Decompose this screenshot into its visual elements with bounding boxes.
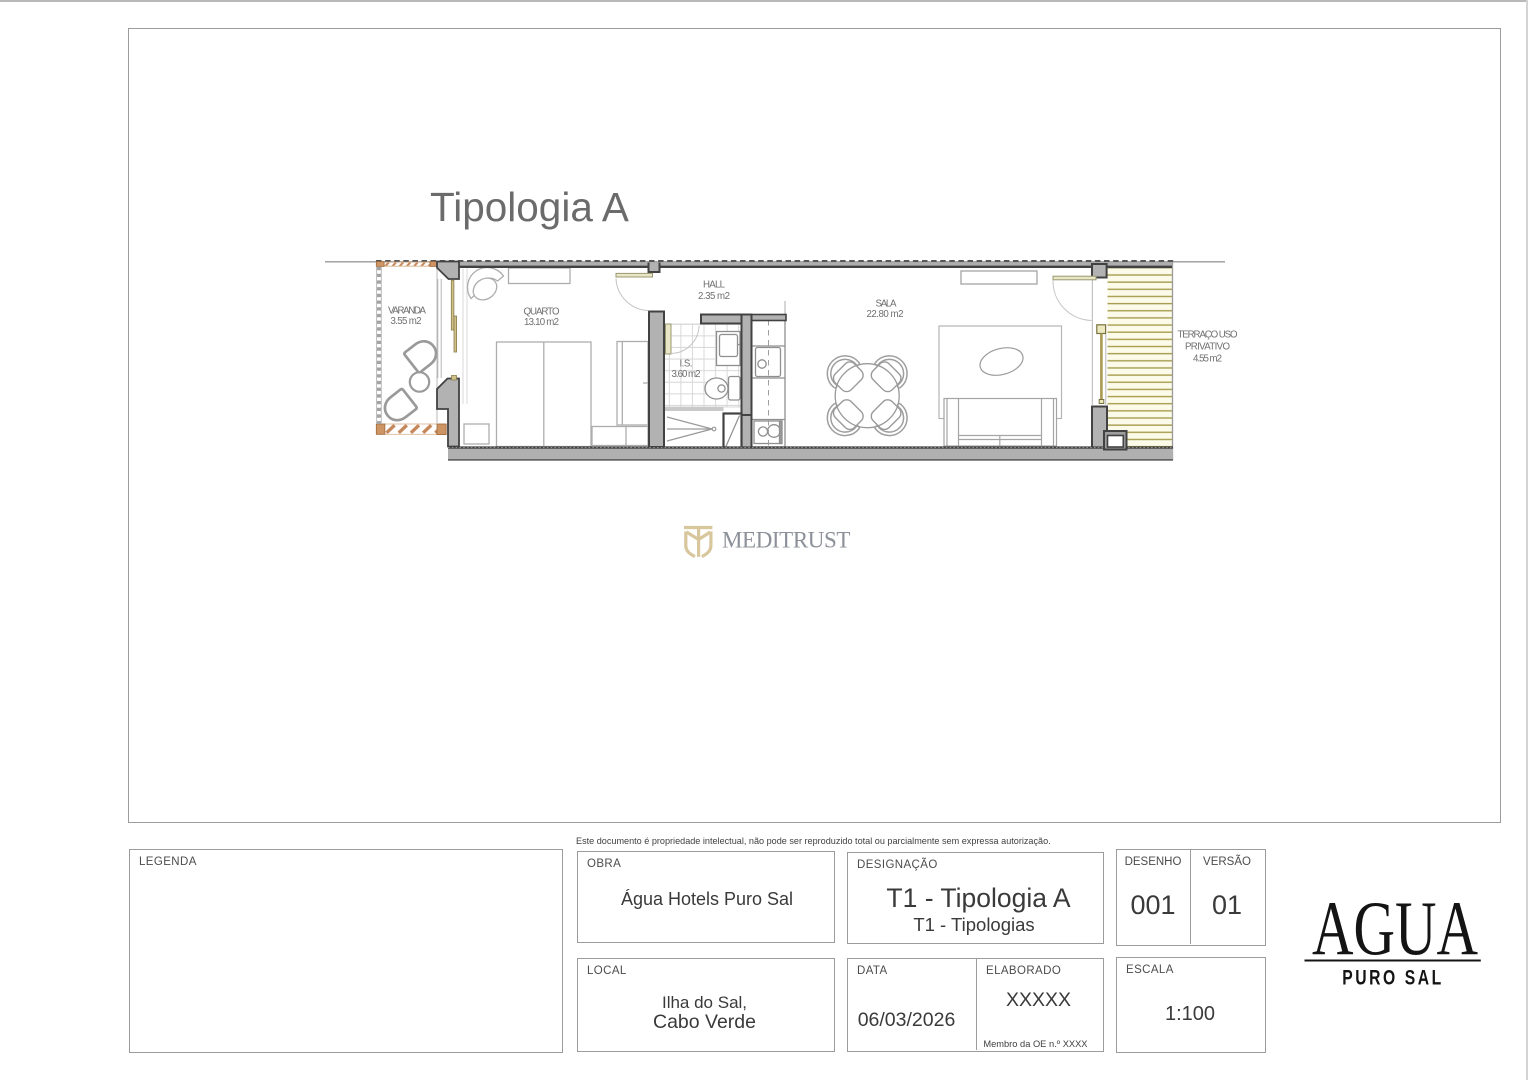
svg-text:PRIVATIVO: PRIVATIVO [1185,342,1230,353]
svg-text:MEDITRUST: MEDITRUST [722,528,850,553]
svg-text:AGUA: AGUA [1312,885,1478,971]
svg-text:VARANDA: VARANDA [388,306,427,317]
svg-text:13.10 m2: 13.10 m2 [524,317,559,328]
svg-text:SALA: SALA [876,299,898,310]
svg-text:PURO SAL: PURO SAL [1342,965,1443,989]
svg-text:3.60 m2: 3.60 m2 [672,369,701,380]
svg-text:22.80 m2: 22.80 m2 [867,309,904,320]
svg-text:QUARTO: QUARTO [524,307,560,318]
svg-text:2.35 m2: 2.35 m2 [698,291,730,302]
svg-text:I.S.: I.S. [680,359,693,370]
svg-text:4.55 m2: 4.55 m2 [1193,354,1222,365]
svg-text:TERRAÇO USO: TERRAÇO USO [1178,330,1238,341]
svg-text:HALL: HALL [703,280,726,291]
svg-text:3.55 m2: 3.55 m2 [391,316,422,327]
